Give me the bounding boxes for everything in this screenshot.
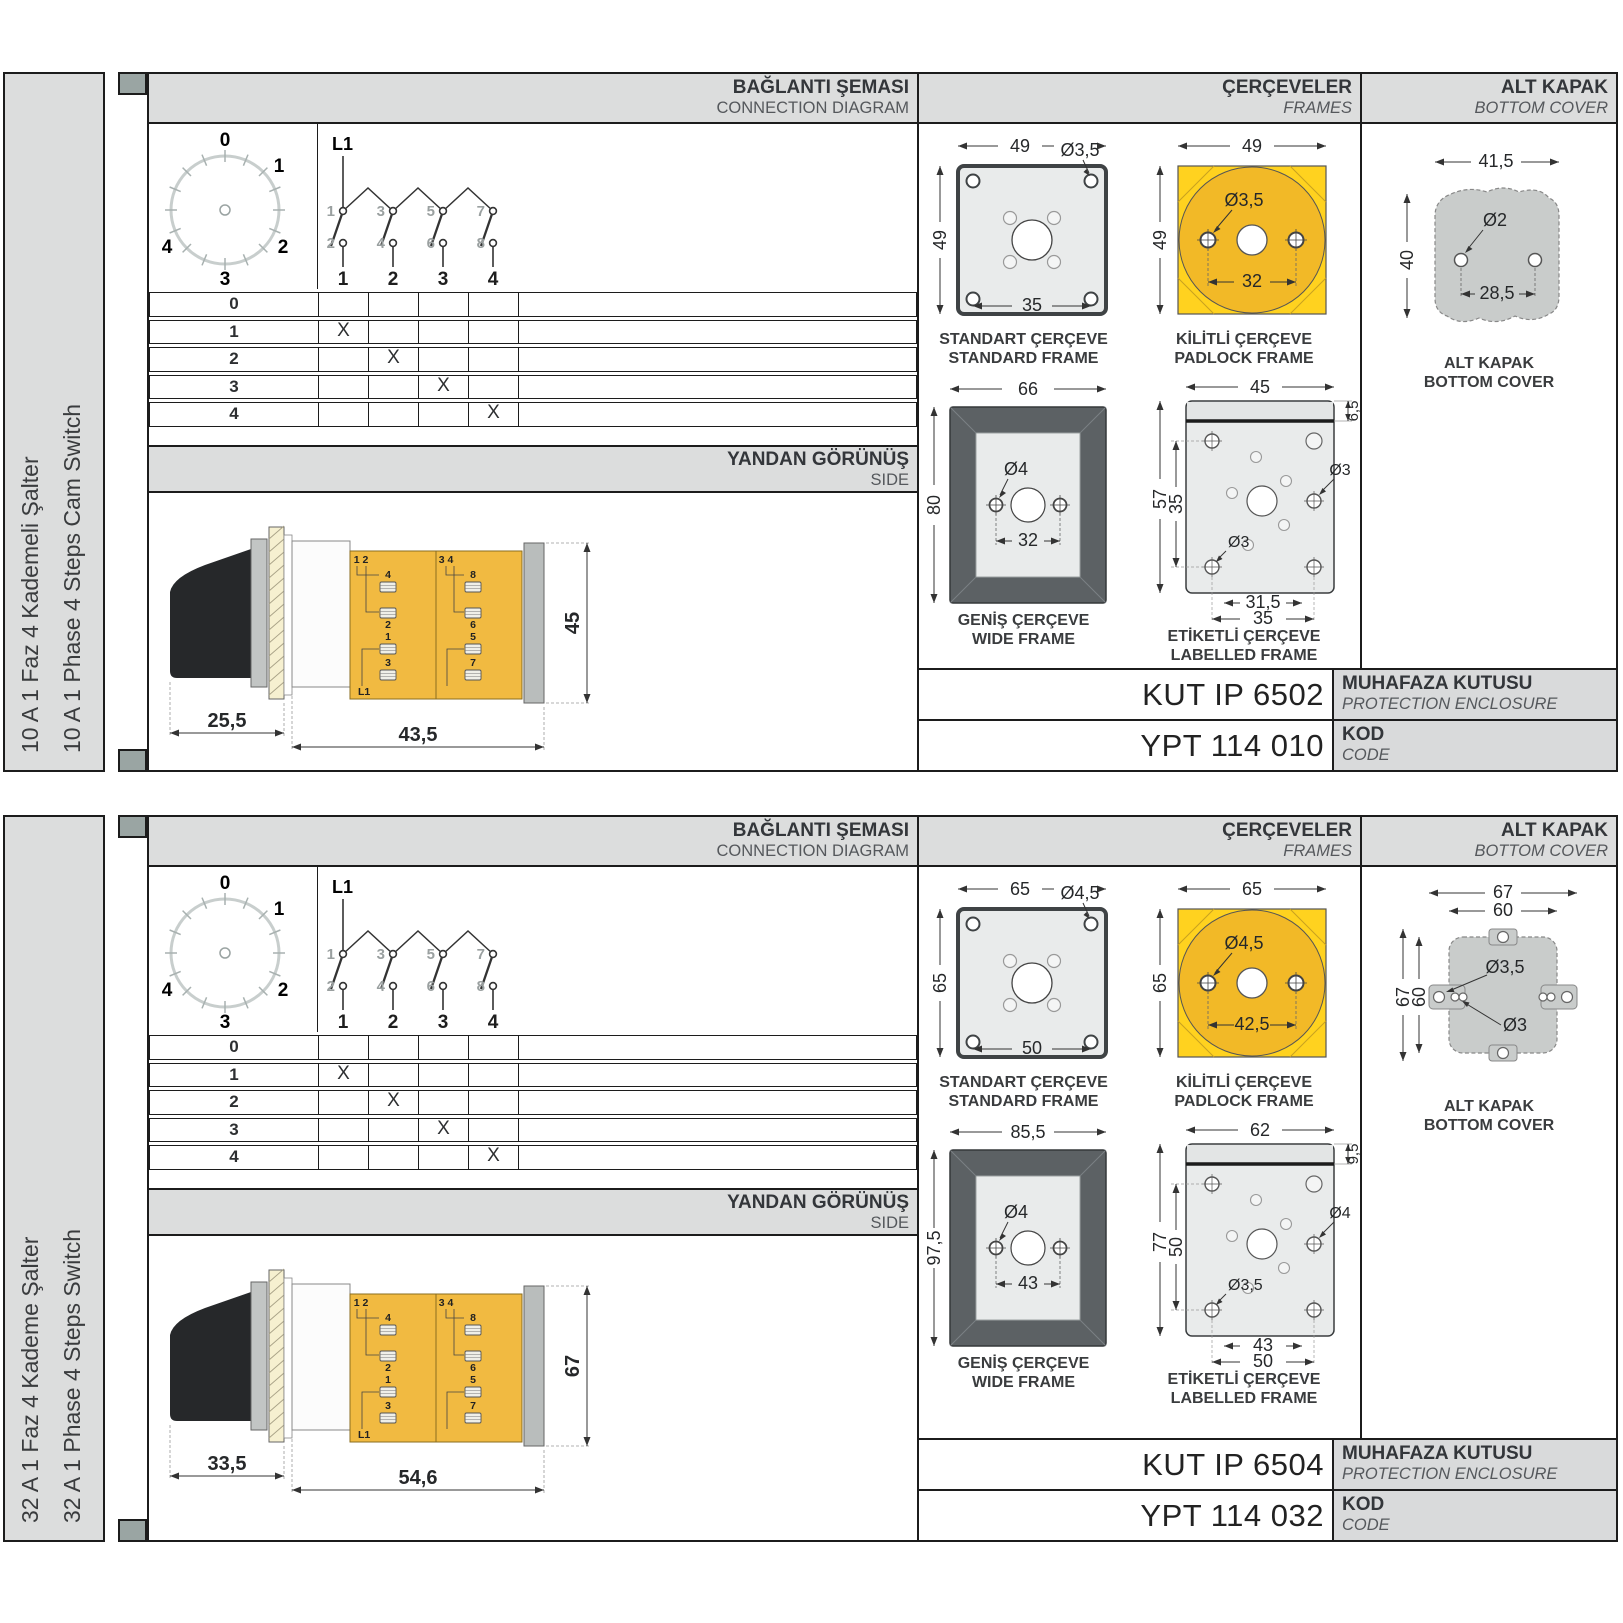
dim-band: 9,5 <box>1334 1143 1360 1164</box>
table-cell: X <box>469 403 519 426</box>
svg-text:4: 4 <box>377 978 386 995</box>
table-cell <box>469 321 519 344</box>
row-filler <box>519 403 916 426</box>
dial-pos-2: 2 <box>278 237 289 258</box>
side-view-header: YANDAN GÖRÜNÜŞ SIDE <box>149 445 917 493</box>
side-view-area: 1 2 3 4 4 2 1 3 8 6 5 7 L1 <box>149 1236 917 1540</box>
bottom-cover-region: 67 60 67 60 <box>1362 867 1616 1438</box>
dim-height-inner: 60 <box>1409 937 1429 1053</box>
dial-pos-0: 0 <box>220 130 231 151</box>
product-title-en: 10 A 1 Phase 4 Steps Cam Switch <box>59 404 86 753</box>
svg-text:35: 35 <box>1021 295 1041 315</box>
svg-text:65: 65 <box>930 973 950 993</box>
center-hole <box>1011 1231 1045 1265</box>
svg-text:Ø4: Ø4 <box>1003 459 1027 479</box>
svg-text:42,5: 42,5 <box>1234 1014 1269 1034</box>
svg-text:Ø3,5: Ø3,5 <box>1060 140 1099 160</box>
cover-header: ALT KAPAK BOTTOM COVER <box>1362 817 1616 865</box>
row-filler <box>519 376 916 399</box>
switch-blades <box>331 954 493 989</box>
wide-frame-figure: Ø4 66 80 <box>919 369 1128 666</box>
svg-text:2: 2 <box>385 1362 391 1374</box>
table-cell <box>319 293 369 316</box>
dial-pos-3: 3 <box>220 1012 231 1032</box>
table-row: 4 X <box>149 1145 917 1170</box>
side-view-header: YANDAN GÖRÜNÜŞ SIDE <box>149 1188 917 1236</box>
dim-width: 45 <box>1186 377 1334 397</box>
row-label: 4 <box>150 403 319 426</box>
frames-header: ÇERÇEVELER FRAMES <box>919 817 1362 865</box>
table-cell <box>469 1064 519 1087</box>
enclosure-code: KUT IP 6504 <box>919 1440 1332 1489</box>
label-band <box>1187 402 1333 421</box>
column-numbers: 1 2 3 4 <box>338 1012 499 1032</box>
labelled-frame-figure: 62 9,5 77 <box>1128 1112 1360 1409</box>
enclosure-row: KUT IP 6504 MUHAFAZA KUTUSU PROTECTION E… <box>919 1440 1616 1489</box>
contact-nodes <box>340 208 497 247</box>
center-hole <box>1237 225 1267 255</box>
standard-frame-figure: 49 Ø3,5 49 <box>919 124 1128 369</box>
svg-text:1: 1 <box>338 1012 349 1032</box>
product-title-tr: 32 A 1 Faz 4 Kademe Şalter <box>17 1237 44 1523</box>
svg-text:60: 60 <box>1493 900 1513 920</box>
table-row: 1 X <box>149 320 917 345</box>
frames-region: 65 Ø4,5 65 <box>919 867 1362 1438</box>
terminal-tails <box>343 246 493 267</box>
spacer-ring <box>284 1278 292 1438</box>
cover-header-en: BOTTOM COVER <box>1362 99 1608 118</box>
svg-text:4: 4 <box>385 1312 391 1324</box>
switching-table: 0 1 X <box>149 1032 917 1173</box>
svg-text:50: 50 <box>1021 1038 1041 1058</box>
svg-text:5: 5 <box>470 631 476 643</box>
svg-text:50: 50 <box>1253 1351 1273 1370</box>
side-header-tr: YANDAN GÖRÜNÜŞ <box>149 449 909 471</box>
table-cell: X <box>369 348 419 371</box>
row-filler <box>519 321 916 344</box>
svg-text:49: 49 <box>1150 230 1170 250</box>
table-cell <box>319 376 369 399</box>
svg-text:3: 3 <box>385 1400 391 1412</box>
svg-text:6: 6 <box>427 235 435 252</box>
side-view-drawing: 1 2 3 4 4 2 1 3 8 6 5 7 L1 <box>155 1240 775 1502</box>
table-cell: X <box>319 1064 369 1087</box>
padlock-frame-caption: KİLİTLİ ÇERÇEVE PADLOCK FRAME <box>1174 1074 1313 1112</box>
spine-square-top <box>118 72 147 95</box>
svg-text:49: 49 <box>1009 136 1029 156</box>
sidebar: 10 A 1 Faz 4 Kademeli Şalter 10 A 1 Phas… <box>3 72 105 772</box>
svg-text:4: 4 <box>385 569 391 581</box>
contacts-cell: L1 1 2 3 <box>318 867 917 1032</box>
bottom-cover-drawing: Ø2 41,5 40 <box>1373 136 1605 354</box>
table-cell: X <box>369 1091 419 1114</box>
table-row: 2 X <box>149 1090 917 1115</box>
center-hole <box>1247 486 1277 516</box>
table-row: 0 <box>149 292 917 317</box>
mounting-plate <box>251 539 267 687</box>
padlock-frame-caption: KİLİTLİ ÇERÇEVE PADLOCK FRAME <box>1174 331 1313 369</box>
dial-cell: 0 1 2 3 4 <box>149 867 318 1032</box>
spacer-strip <box>149 1173 917 1188</box>
svg-text:6: 6 <box>427 978 435 995</box>
rotary-dial-drawing: 0 1 2 3 4 <box>149 867 316 1032</box>
svg-text:1: 1 <box>327 946 335 963</box>
table-cell <box>419 321 469 344</box>
contacts-drawing: L1 1 2 3 <box>318 124 916 289</box>
product-code-label: KOD CODE <box>1332 721 1616 770</box>
svg-text:60: 60 <box>1409 987 1429 1007</box>
svg-text:3: 3 <box>438 269 449 289</box>
svg-text:49: 49 <box>930 230 950 250</box>
spine-square-bottom <box>118 749 147 772</box>
standard-frame-drawing: 65 Ø4,5 65 <box>924 873 1124 1073</box>
svg-text:6,5: 6,5 <box>1345 400 1360 421</box>
spine-square-top <box>118 815 147 838</box>
svg-text:2: 2 <box>385 619 391 631</box>
table-cell <box>369 321 419 344</box>
table-cell: X <box>469 1146 519 1169</box>
svg-text:2: 2 <box>327 978 335 995</box>
svg-text:2: 2 <box>388 1012 399 1032</box>
table-cell <box>419 403 469 426</box>
cover-header: ALT KAPAK BOTTOM COVER <box>1362 74 1616 122</box>
dim-height: 49 <box>930 166 950 314</box>
mounting-plate <box>251 1282 267 1430</box>
front-housing <box>292 541 350 687</box>
center-hole <box>1237 968 1267 998</box>
svg-text:66: 66 <box>1017 379 1037 399</box>
svg-text:3: 3 <box>377 946 385 963</box>
svg-text:4: 4 <box>488 269 499 289</box>
section-header-row: BAĞLANTI ŞEMASI CONNECTION DIAGRAM ÇERÇE… <box>149 74 1616 124</box>
cover-header-en: BOTTOM COVER <box>1362 842 1608 861</box>
connection-header-tr: BAĞLANTI ŞEMASI <box>149 77 909 99</box>
svg-text:5: 5 <box>470 1374 476 1386</box>
wide-frame-figure: Ø4 85,5 97,5 <box>919 1112 1128 1409</box>
svg-text:5: 5 <box>427 946 435 963</box>
row-filler <box>519 348 916 371</box>
svg-text:43: 43 <box>1017 1273 1037 1293</box>
side-header-tr: YANDAN GÖRÜNÜŞ <box>149 1192 909 1214</box>
dim-width: 66 <box>950 379 1106 399</box>
svg-text:1 2: 1 2 <box>354 1297 369 1309</box>
spacer-ring <box>284 535 292 695</box>
svg-text:85,5: 85,5 <box>1010 1122 1045 1142</box>
dial-pos-0: 0 <box>220 873 231 894</box>
svg-text:3 4: 3 4 <box>439 554 454 566</box>
svg-text:8: 8 <box>470 569 476 581</box>
product-title-en: 32 A 1 Phase 4 Steps Switch <box>59 1229 86 1523</box>
dim-width: 41,5 <box>1435 151 1559 171</box>
enclosure-row: KUT IP 6502 MUHAFAZA KUTUSU PROTECTION E… <box>919 670 1616 719</box>
rotary-dial-drawing: 0 1 2 3 4 <box>149 124 316 289</box>
svg-text:6: 6 <box>470 1362 476 1374</box>
svg-text:2: 2 <box>327 235 335 252</box>
table-row: 1 X <box>149 1063 917 1088</box>
side-header-en: SIDE <box>149 471 909 490</box>
table-cell: X <box>319 321 369 344</box>
sidebar: 32 A 1 Faz 4 Kademe Şalter 32 A 1 Phase … <box>3 815 105 1542</box>
svg-text:1: 1 <box>385 631 391 643</box>
enclosure-code: KUT IP 6502 <box>919 670 1332 719</box>
svg-text:1: 1 <box>385 1374 391 1386</box>
section-header-row: BAĞLANTI ŞEMASI CONNECTION DIAGRAM ÇERÇE… <box>149 817 1616 867</box>
dim-width: 65 <box>1178 879 1326 899</box>
labelled-frame-drawing: 62 9,5 77 <box>1128 1118 1360 1370</box>
standard-frame-figure: 65 Ø4,5 65 <box>919 867 1128 1112</box>
datasheet-main: BAĞLANTI ŞEMASI CONNECTION DIAGRAM ÇERÇE… <box>147 72 1618 772</box>
connection-header-en: CONNECTION DIAGRAM <box>149 99 909 118</box>
svg-text:4: 4 <box>377 235 386 252</box>
panel-strip <box>269 1270 284 1442</box>
codes-region: KUT IP 6502 MUHAFAZA KUTUSU PROTECTION E… <box>919 668 1616 770</box>
table-cell <box>319 1091 369 1114</box>
svg-text:L1: L1 <box>358 1429 370 1441</box>
side-header-en: SIDE <box>149 1214 909 1233</box>
table-cell <box>469 1119 519 1142</box>
table-cell <box>369 1036 419 1059</box>
svg-text:41,5: 41,5 <box>1478 151 1513 171</box>
labelled-frame-caption: ETİKETLİ ÇERÇEVE LABELLED FRAME <box>1168 628 1321 666</box>
dial-pos-1: 1 <box>274 899 285 920</box>
center-hole <box>1012 963 1052 1003</box>
dim-handle: 33,5 <box>170 1425 284 1480</box>
table-cell: X <box>419 376 469 399</box>
dial-pos-4: 4 <box>162 980 173 1001</box>
wide-frame-drawing: Ø4 66 80 <box>920 375 1128 611</box>
svg-text:62: 62 <box>1250 1120 1270 1140</box>
enclosure-label: MUHAFAZA KUTUSU PROTECTION ENCLOSURE <box>1332 670 1616 719</box>
standard-frame-caption: STANDART ÇERÇEVE STANDARD FRAME <box>939 1074 1108 1112</box>
row-label: 2 <box>150 1091 319 1114</box>
table-cell <box>369 1064 419 1087</box>
connection-region: 0 1 2 3 4 L1 <box>149 867 919 1540</box>
product-code-row: YPT 114 032 KOD CODE <box>919 1489 1616 1540</box>
table-cell <box>419 1036 469 1059</box>
connection-region: 0 1 2 3 4 L1 <box>149 124 919 770</box>
bottom-cover-drawing: 67 60 67 60 <box>1373 879 1605 1097</box>
svg-text:Ø3: Ø3 <box>1503 1015 1527 1035</box>
svg-text:3: 3 <box>438 1012 449 1032</box>
svg-text:4: 4 <box>488 1012 499 1032</box>
column-numbers: 1 2 3 4 <box>338 269 499 289</box>
row-filler <box>519 1146 916 1169</box>
svg-text:6: 6 <box>470 619 476 631</box>
side-view-area: 1 2 3 4 4 2 1 3 8 6 5 7 L1 <box>149 493 917 770</box>
row-label: 3 <box>150 376 319 399</box>
row-filler <box>519 1036 916 1059</box>
end-cap <box>524 543 544 703</box>
labelled-frame-figure: 45 6,5 57 <box>1128 369 1360 666</box>
table-cell <box>369 403 419 426</box>
table-row: 3 X <box>149 375 917 400</box>
labelled-frame-caption: ETİKETLİ ÇERÇEVE LABELLED FRAME <box>1168 1371 1321 1409</box>
svg-text:1: 1 <box>338 269 349 289</box>
svg-text:7: 7 <box>470 657 476 669</box>
table-cell <box>369 293 419 316</box>
enclosure-label: MUHAFAZA KUTUSU PROTECTION ENCLOSURE <box>1332 1440 1616 1489</box>
table-cell <box>419 348 469 371</box>
svg-text:65: 65 <box>1009 879 1029 899</box>
table-cell <box>319 403 369 426</box>
svg-text:28,5: 28,5 <box>1479 283 1514 303</box>
row-label: 0 <box>150 293 319 316</box>
dim-handle-value: 25,5 <box>208 710 247 732</box>
svg-text:9,5: 9,5 <box>1345 1143 1360 1164</box>
table-cell <box>419 1064 469 1087</box>
center-hole <box>1012 220 1052 260</box>
cover-header-tr: ALT KAPAK <box>1362 77 1608 99</box>
bottom-cover-region: Ø2 41,5 40 <box>1362 124 1616 668</box>
table-cell <box>469 293 519 316</box>
dim-height: 67 <box>546 1286 591 1446</box>
table-cell <box>419 1146 469 1169</box>
svg-text:Ø3,5: Ø3,5 <box>1228 1277 1263 1294</box>
dial-pos-2: 2 <box>278 980 289 1001</box>
dim-bottom-outer: 35 <box>1212 608 1314 627</box>
svg-text:Ø4,5: Ø4,5 <box>1224 933 1263 953</box>
dial-cell: 0 1 2 3 4 <box>149 124 318 289</box>
svg-text:67: 67 <box>1493 882 1513 902</box>
svg-text:7: 7 <box>477 946 485 963</box>
table-row: 3 X <box>149 1118 917 1143</box>
wide-frame-caption: GENİŞ ÇERÇEVE WIDE FRAME <box>958 612 1090 650</box>
dim-body: 54,6 <box>292 1434 544 1494</box>
svg-text:Ø2: Ø2 <box>1483 210 1507 230</box>
product-code-label: KOD CODE <box>1332 1491 1616 1540</box>
dim-height: 45 <box>546 543 591 703</box>
svg-text:Ø4: Ø4 <box>1003 1202 1027 1222</box>
dim-height-value: 45 <box>562 612 584 634</box>
connection-header: BAĞLANTI ŞEMASI CONNECTION DIAGRAM <box>149 817 919 865</box>
dim-bottom-outer: 50 <box>1212 1351 1314 1370</box>
table-cell <box>419 1091 469 1114</box>
dim-body-value: 43,5 <box>399 724 438 746</box>
panel-body: 0 1 2 3 4 L1 <box>149 124 1616 770</box>
end-cap <box>524 1286 544 1446</box>
table-row: 0 <box>149 1035 917 1060</box>
row-label: 1 <box>150 321 319 344</box>
switch-blades <box>331 211 493 246</box>
table-cell <box>469 1091 519 1114</box>
dim-width: 62 <box>1186 1120 1334 1140</box>
feed-label: L1 <box>332 134 353 154</box>
svg-text:3: 3 <box>377 203 385 220</box>
standard-frame-caption: STANDART ÇERÇEVE STANDARD FRAME <box>939 331 1108 369</box>
svg-text:5: 5 <box>427 203 435 220</box>
row-label: 3 <box>150 1119 319 1142</box>
dim-height-value: 67 <box>562 1355 584 1377</box>
svg-text:Ø3: Ø3 <box>1329 462 1350 479</box>
svg-text:45: 45 <box>1250 377 1270 397</box>
dim-height: 65 <box>930 909 950 1057</box>
table-cell <box>419 293 469 316</box>
product-code-row: YPT 114 010 KOD CODE <box>919 719 1616 770</box>
table-cell <box>469 348 519 371</box>
dim-width-inner: 60 <box>1449 900 1557 920</box>
switching-table: 0 1 X <box>149 289 917 430</box>
dim-height: 40 <box>1397 194 1417 318</box>
row-label: 1 <box>150 1064 319 1087</box>
frames-header-tr: ÇERÇEVELER <box>919 820 1352 842</box>
svg-text:1: 1 <box>327 203 335 220</box>
dim-handle-value: 33,5 <box>208 1453 247 1475</box>
bottom-cover-caption: ALT KAPAK BOTTOM COVER <box>1424 355 1554 393</box>
row-label: 2 <box>150 348 319 371</box>
svg-text:7: 7 <box>470 1400 476 1412</box>
svg-text:97,5: 97,5 <box>924 1230 944 1265</box>
connection-header-en: CONNECTION DIAGRAM <box>149 842 909 861</box>
table-cell <box>469 1036 519 1059</box>
contact-nodes <box>340 951 497 990</box>
switch-handle <box>170 1292 251 1421</box>
bridge-links <box>343 188 493 211</box>
table-cell: X <box>419 1119 469 1142</box>
svg-text:35: 35 <box>1166 494 1186 514</box>
table-row: 4 X <box>149 402 917 427</box>
svg-text:35: 35 <box>1253 608 1273 627</box>
dim-width-outer: 67 <box>1429 882 1577 902</box>
svg-text:8: 8 <box>477 978 485 995</box>
row-filler <box>519 1119 916 1142</box>
dim-height: 49 <box>1150 166 1170 314</box>
dim-height: 80 <box>924 407 944 603</box>
svg-text:8: 8 <box>477 235 485 252</box>
bottom-cover-caption: ALT KAPAK BOTTOM COVER <box>1424 1098 1554 1136</box>
padlock-frame-drawing: Ø4,5 65 65 <box>1144 873 1344 1073</box>
svg-text:3 4: 3 4 <box>439 1297 454 1309</box>
front-housing <box>292 1284 350 1430</box>
label-band <box>1187 1145 1333 1164</box>
datasheet-main: BAĞLANTI ŞEMASI CONNECTION DIAGRAM ÇERÇE… <box>147 815 1618 1542</box>
terminal-tails <box>343 989 493 1010</box>
frames-header: ÇERÇEVELER FRAMES <box>919 74 1362 122</box>
svg-text:80: 80 <box>924 495 944 515</box>
svg-text:3: 3 <box>385 657 391 669</box>
product-panel: 32 A 1 Faz 4 Kademe Şalter 32 A 1 Phase … <box>0 815 1623 1542</box>
table-row: 2 X <box>149 347 917 372</box>
dim-height: 65 <box>1150 909 1170 1057</box>
svg-text:40: 40 <box>1397 250 1417 270</box>
product-title-tr: 10 A 1 Faz 4 Kademeli Şalter <box>17 456 44 753</box>
dim-height: 97,5 <box>924 1150 944 1346</box>
svg-text:32: 32 <box>1242 271 1262 291</box>
svg-text:Ø3: Ø3 <box>1228 534 1249 551</box>
padlock-frame-figure: Ø4,5 65 65 <box>1128 867 1360 1112</box>
connection-header-tr: BAĞLANTI ŞEMASI <box>149 820 909 842</box>
svg-text:L1: L1 <box>358 686 370 698</box>
spacer-strip <box>149 430 917 445</box>
svg-text:50: 50 <box>1166 1237 1186 1257</box>
dial-pos-1: 1 <box>274 156 285 177</box>
panel-body: 0 1 2 3 4 L1 <box>149 867 1616 1540</box>
dim-width: 85,5 <box>950 1122 1106 1142</box>
padlock-frame-drawing: Ø3,5 49 49 <box>1144 130 1344 330</box>
svg-text:1 2: 1 2 <box>354 554 369 566</box>
spine-square-bottom <box>118 1519 147 1542</box>
connection-header: BAĞLANTI ŞEMASI CONNECTION DIAGRAM <box>149 74 919 122</box>
product-panel: 10 A 1 Faz 4 Kademeli Şalter 10 A 1 Phas… <box>0 72 1623 772</box>
standard-frame-drawing: 49 Ø3,5 49 <box>924 130 1124 330</box>
svg-text:Ø3,5: Ø3,5 <box>1224 190 1263 210</box>
svg-text:8: 8 <box>470 1312 476 1324</box>
switch-handle <box>170 549 251 678</box>
table-cell <box>469 376 519 399</box>
bridge-links <box>343 931 493 954</box>
svg-text:Ø4,5: Ø4,5 <box>1060 883 1099 903</box>
product-code: YPT 114 032 <box>919 1491 1332 1540</box>
svg-text:65: 65 <box>1242 879 1262 899</box>
